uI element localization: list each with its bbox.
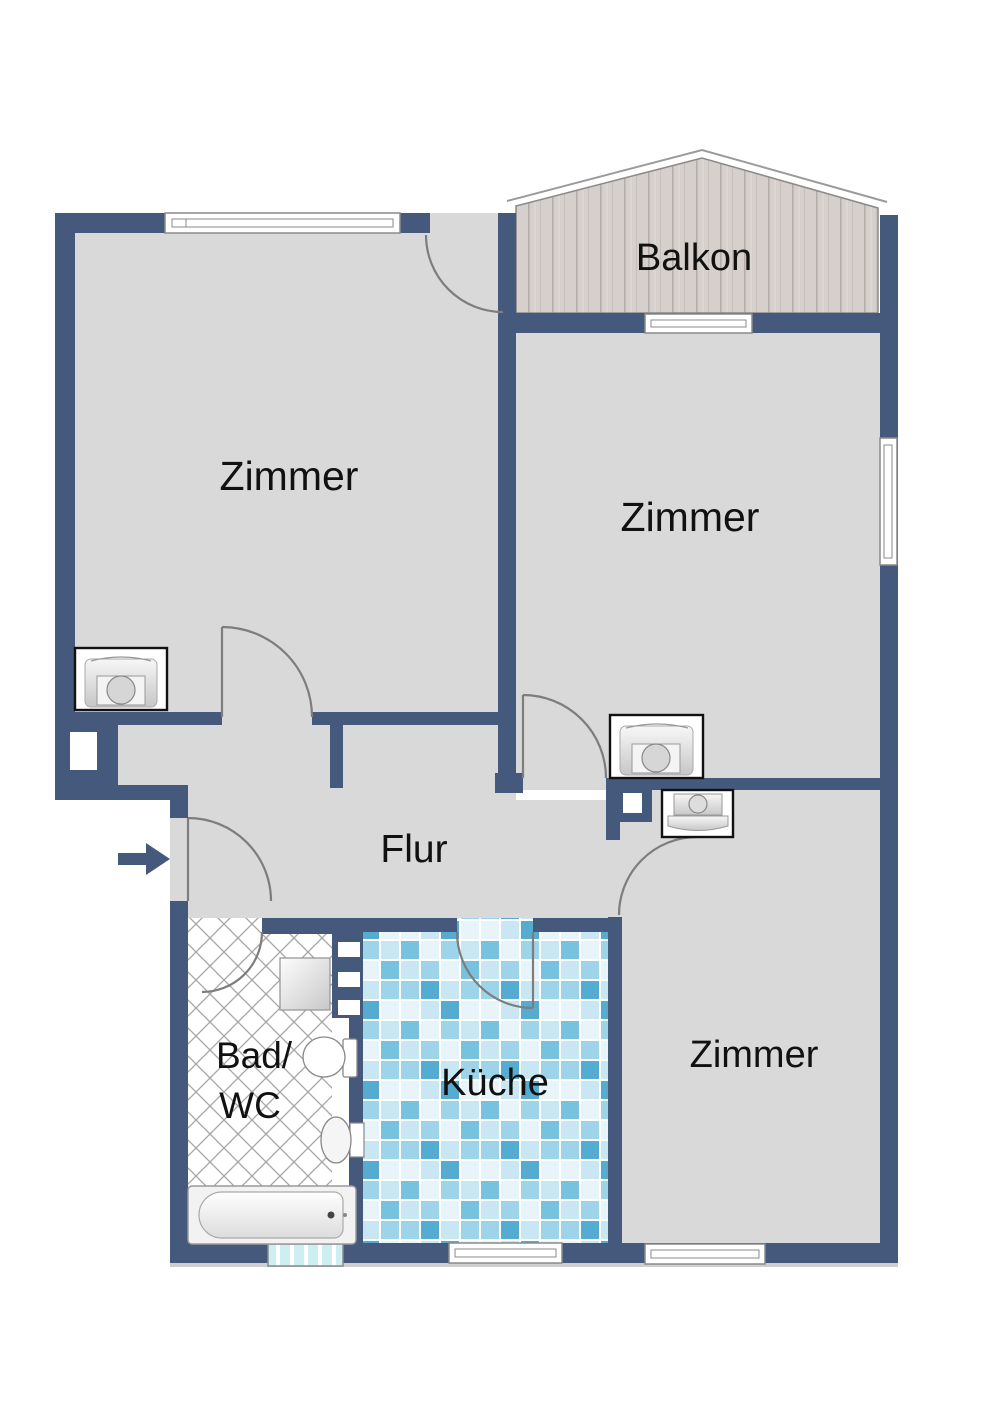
wall-segment <box>606 790 620 840</box>
label-bad-line1: Bad/ <box>216 1035 293 1076</box>
label-zimmer-bottom: Zimmer <box>690 1034 819 1076</box>
wall-segment <box>118 712 222 725</box>
entry-arrow-icon <box>118 843 170 875</box>
toilet-icon <box>303 1037 357 1077</box>
shaft-opening <box>338 942 360 957</box>
window-right-zimmer <box>880 438 897 565</box>
wall-segment <box>55 213 75 713</box>
label-kueche: Küche <box>441 1062 549 1104</box>
label-balkon: Balkon <box>636 237 752 279</box>
wall-segment <box>400 213 430 233</box>
label-flur: Flur <box>380 828 447 871</box>
floor-entry-threshold <box>170 818 188 901</box>
washing-machine-icon <box>75 648 167 710</box>
sink-icon <box>662 790 733 837</box>
floor-plan: Balkon Zimmer Zimmer Flur Bad/ WC Küche … <box>0 0 1000 1415</box>
wash-basin-icon <box>321 1117 364 1163</box>
window-zimmer-bottom <box>645 1244 765 1264</box>
wall-segment <box>495 773 523 793</box>
wall-segment <box>498 213 516 778</box>
window-bad <box>268 1244 343 1266</box>
floor-zimmer-door-threshold <box>523 778 606 790</box>
washing-machine-icon <box>610 715 703 778</box>
floor-plan-page: Balkon Zimmer Zimmer Flur Bad/ WC Küche … <box>0 0 1000 1415</box>
wall-segment <box>170 935 188 1263</box>
wall-segment <box>330 723 343 788</box>
wall-segment <box>880 215 898 1263</box>
bathtub-icon <box>188 1186 356 1244</box>
floor-balcony-door-threshold <box>430 213 498 233</box>
label-zimmer-top-left: Zimmer <box>220 453 359 499</box>
label-bad-line2: WC <box>219 1085 281 1126</box>
floor-zimmer-bottom <box>622 790 880 1245</box>
window-top-zimmer <box>165 213 400 233</box>
wall-segment <box>55 785 188 800</box>
shaft-opening <box>338 972 360 987</box>
window-kueche <box>449 1243 562 1263</box>
balcony-deck <box>516 158 878 313</box>
wall-segment <box>170 800 188 818</box>
wall-segment <box>608 917 622 1243</box>
shaft-opening <box>70 732 97 770</box>
wall-segment <box>170 901 188 935</box>
shower-tray-icon <box>280 958 330 1010</box>
shaft-opening <box>338 1000 360 1015</box>
label-zimmer-top-right: Zimmer <box>621 494 760 540</box>
shaft-opening <box>623 793 642 813</box>
wall-segment <box>363 918 457 932</box>
window-balcony <box>645 314 752 333</box>
